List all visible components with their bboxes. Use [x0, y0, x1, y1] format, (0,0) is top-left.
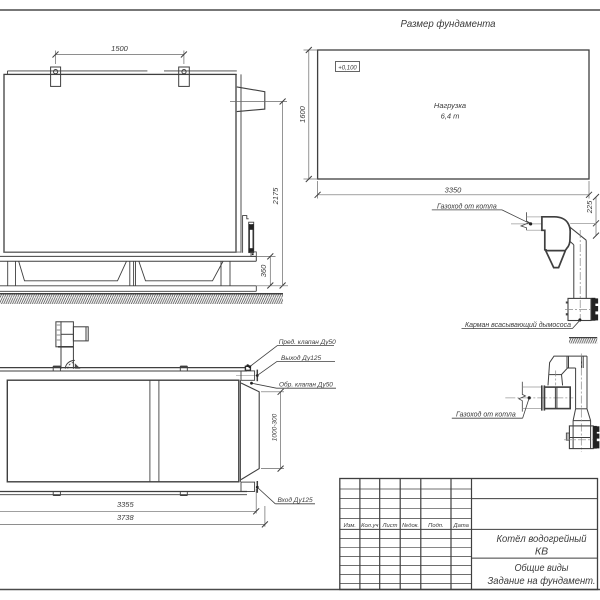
svg-text:1500: 1500	[111, 44, 129, 53]
svg-text:№док.: №док.	[402, 523, 419, 529]
svg-text:Котёл водогрейный: Котёл водогрейный	[497, 533, 587, 545]
svg-text:Выход Ду125: Выход Ду125	[281, 354, 321, 362]
svg-text:6,4 т: 6,4 т	[441, 112, 460, 121]
svg-text:Размер фундамента: Размер фундамента	[401, 18, 496, 30]
svg-text:Общие виды: Общие виды	[515, 562, 569, 574]
svg-text:Газоход от котла: Газоход от котла	[437, 203, 497, 211]
svg-text:Изм.: Изм.	[344, 523, 356, 529]
svg-text:Нагрузка: Нагрузка	[434, 101, 466, 110]
svg-text:Карман всасывающий дымососа: Карман всасывающий дымососа	[465, 320, 571, 329]
svg-text:Дата: Дата	[453, 523, 470, 529]
svg-text:Пред. клапан Ду50: Пред. клапан Ду50	[279, 338, 336, 346]
svg-text:Газоход от котла: Газоход от котла	[456, 411, 516, 419]
svg-text:3355: 3355	[117, 500, 135, 509]
svg-text:225: 225	[585, 200, 594, 214]
svg-text:1600: 1600	[298, 105, 307, 123]
svg-text:360: 360	[259, 264, 268, 277]
svg-text:1000-300: 1000-300	[272, 413, 279, 441]
svg-text:Вход Ду125: Вход Ду125	[278, 496, 313, 504]
svg-text:3738: 3738	[117, 513, 135, 522]
svg-text:Задание на фундамент.: Задание на фундамент.	[488, 575, 596, 587]
svg-text:3350: 3350	[445, 185, 463, 194]
svg-text:+0,100: +0,100	[338, 65, 357, 71]
svg-text:Подп.: Подп.	[428, 523, 443, 529]
svg-text:Обр. клапан Ду50: Обр. клапан Ду50	[279, 380, 333, 388]
svg-text:2175: 2175	[271, 187, 280, 206]
svg-text:Лист: Лист	[382, 523, 398, 529]
svg-text:КВ: КВ	[535, 546, 548, 558]
svg-text:Кол.уч: Кол.уч	[361, 523, 378, 529]
